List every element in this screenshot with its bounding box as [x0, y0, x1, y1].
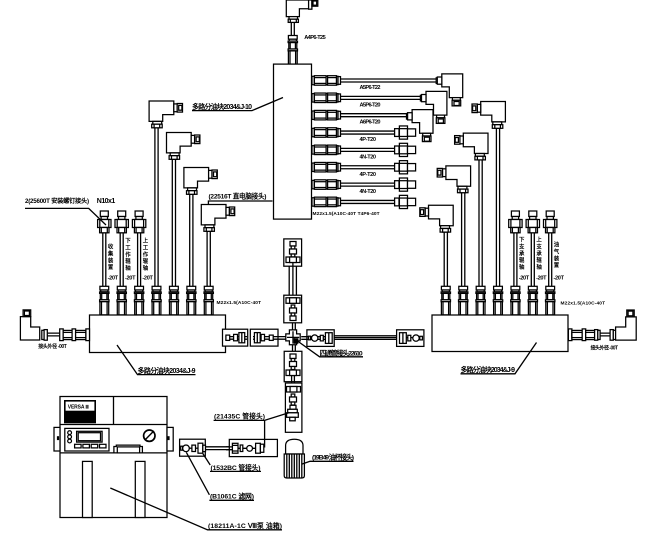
- svg-text:A4P6-T25: A4P6-T25: [304, 35, 326, 41]
- svg-text:辊: 辊: [519, 256, 525, 264]
- svg-text:下: 下: [125, 238, 131, 245]
- svg-text:M22x1.5(A10C-40T T4P6-40T: M22x1.5(A10C-40T T4P6-40T: [313, 211, 380, 217]
- svg-text:(18211A-1C Ⅷ泵 油箱): (18211A-1C Ⅷ泵 油箱): [208, 521, 282, 530]
- svg-text:作: 作: [143, 250, 149, 258]
- svg-text:四通管接头22610: 四通管接头22610: [320, 348, 363, 357]
- svg-text:接头外径 -00T: 接头外径 -00T: [37, 343, 67, 350]
- svg-text:多路分油块2034&J-9: 多路分油块2034&J-9: [461, 365, 516, 374]
- svg-text:下: 下: [519, 237, 525, 244]
- svg-text:收: 收: [108, 243, 114, 251]
- svg-text:(1532BC 管接头): (1532BC 管接头): [211, 463, 261, 472]
- svg-text:辊: 辊: [125, 257, 131, 265]
- svg-text:(22516T 直电脑接头): (22516T 直电脑接头): [209, 191, 267, 200]
- svg-text:A5P6-T20: A5P6-T20: [360, 102, 381, 108]
- svg-text:多路分油块2034&J-9: 多路分油块2034&J-9: [138, 366, 196, 375]
- svg-text:油: 油: [554, 241, 560, 249]
- svg-text:多路分油块2034&J-10: 多路分油块2034&J-10: [192, 102, 252, 111]
- svg-text:轴: 轴: [519, 263, 525, 271]
- svg-text:2(25600T 安装螺钉接头): 2(25600T 安装螺钉接头): [25, 197, 89, 205]
- svg-text:M22x1.5(A10C-40T: M22x1.5(A10C-40T: [561, 300, 606, 306]
- svg-text:M22x1.5(A10C-40T: M22x1.5(A10C-40T: [217, 300, 262, 306]
- svg-text:承: 承: [536, 249, 542, 257]
- svg-text:承: 承: [519, 249, 525, 257]
- svg-text:装: 装: [107, 256, 114, 264]
- svg-text:-20T: -20T: [536, 276, 547, 282]
- svg-text:辊: 辊: [536, 256, 542, 264]
- svg-text:-20T: -20T: [519, 276, 530, 282]
- svg-text:辊: 辊: [143, 257, 149, 265]
- svg-text:上: 上: [143, 237, 149, 245]
- svg-text:N10x1: N10x1: [97, 198, 116, 205]
- svg-text:置: 置: [554, 261, 560, 269]
- svg-text:接头外径 -00T: 接头外径 -00T: [590, 345, 619, 352]
- svg-text:(21435C 管接头): (21435C 管接头): [214, 412, 265, 421]
- svg-text:VERSA Ⅲ: VERSA Ⅲ: [68, 404, 90, 411]
- svg-text:工: 工: [143, 244, 149, 251]
- svg-text:4P-T20: 4P-T20: [360, 172, 377, 178]
- svg-text:A5P6-T22: A5P6-T22: [360, 85, 381, 91]
- svg-text:-20T: -20T: [108, 276, 119, 282]
- svg-text:支: 支: [518, 242, 525, 250]
- svg-text:装: 装: [553, 254, 560, 262]
- svg-text:气: 气: [553, 247, 560, 255]
- svg-text:A6P6-T20: A6P6-T20: [360, 120, 381, 126]
- svg-text:轴: 轴: [143, 264, 149, 272]
- svg-text:轴: 轴: [536, 263, 542, 271]
- svg-text:上: 上: [536, 236, 542, 244]
- svg-text:集: 集: [107, 249, 114, 257]
- svg-text:支: 支: [535, 242, 542, 250]
- svg-text:置: 置: [108, 263, 114, 271]
- svg-text:-20T: -20T: [125, 276, 136, 282]
- svg-text:轴: 轴: [125, 264, 131, 272]
- svg-text:(B1061C 滤网): (B1061C 滤网): [210, 491, 254, 500]
- svg-text:4N-T20: 4N-T20: [360, 154, 377, 160]
- svg-text:-20T: -20T: [142, 276, 153, 282]
- svg-text:4P-T20: 4P-T20: [360, 137, 377, 143]
- svg-text:4N-T20: 4N-T20: [360, 189, 377, 195]
- svg-text:作: 作: [125, 250, 131, 258]
- svg-text:工: 工: [125, 244, 131, 251]
- svg-text:(19B49 油杯接头): (19B49 油杯接头): [312, 452, 354, 461]
- svg-text:-20T: -20T: [554, 276, 565, 282]
